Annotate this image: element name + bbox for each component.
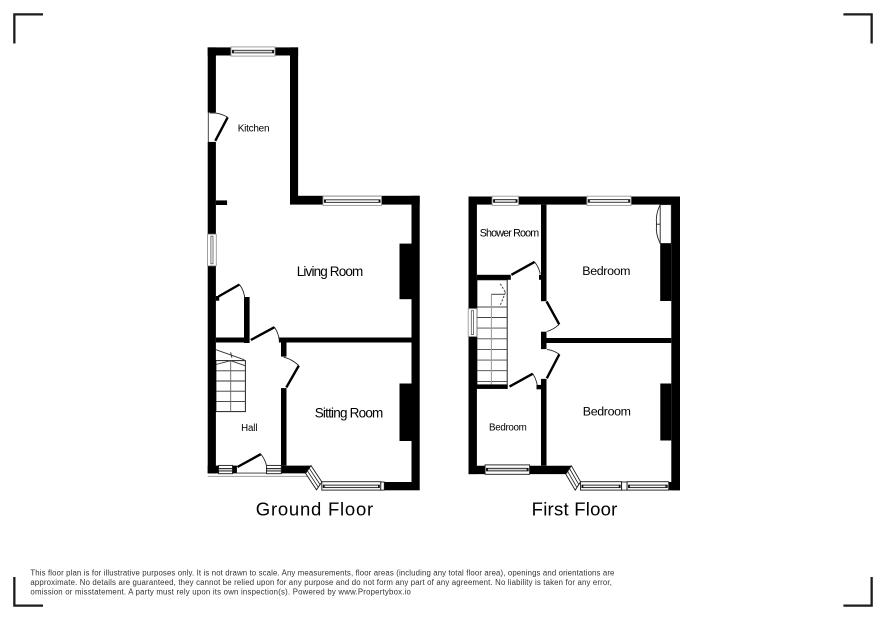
svg-text:approximate. No details are gu: approximate. No details are guaranteed, … (30, 578, 612, 587)
svg-text:Kitchen: Kitchen (238, 124, 270, 135)
svg-text:Bedroom: Bedroom (582, 264, 630, 278)
svg-text:Living Room: Living Room (297, 264, 364, 279)
svg-text:Hall: Hall (241, 423, 257, 434)
svg-text:Shower Room: Shower Room (480, 227, 539, 239)
svg-text:Ground Floor: Ground Floor (256, 499, 373, 520)
svg-text:Bedroom: Bedroom (583, 405, 631, 419)
svg-text:Sitting Room: Sitting Room (315, 405, 384, 420)
svg-text:omission or misstatement. A pa: omission or misstatement. A party must r… (30, 587, 411, 596)
svg-text:Bedroom: Bedroom (489, 423, 527, 434)
svg-text:This floor plan is for illustr: This floor plan is for illustrative purp… (30, 569, 614, 578)
svg-text:First Floor: First Floor (532, 499, 618, 520)
